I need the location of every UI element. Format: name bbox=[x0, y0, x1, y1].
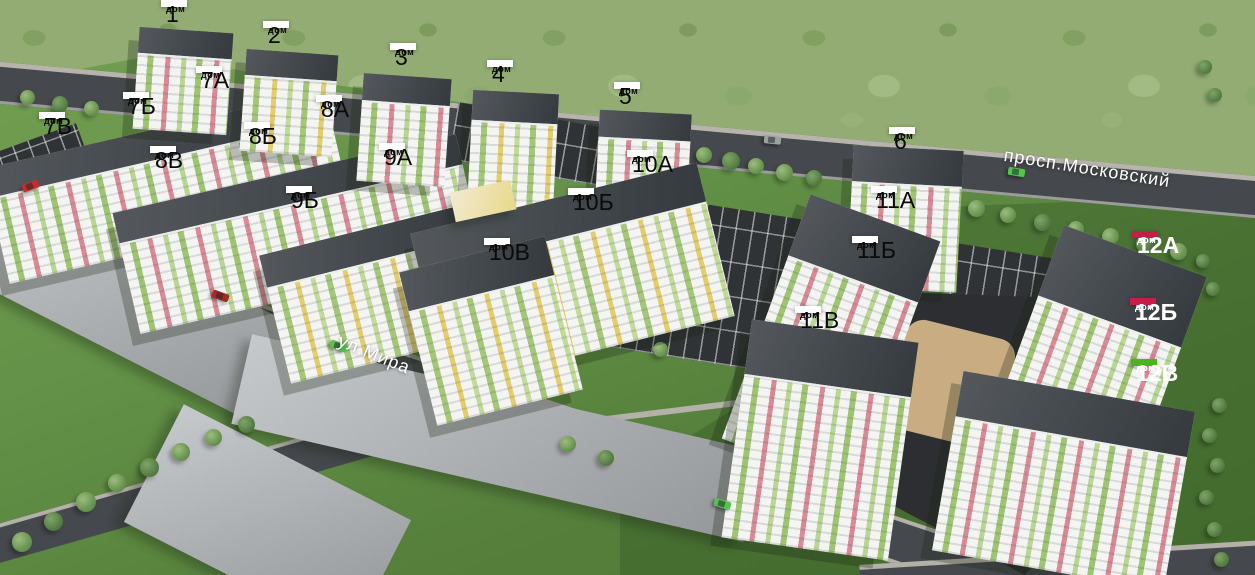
marker-sub-label: дом bbox=[128, 97, 147, 106]
tree bbox=[1214, 552, 1229, 567]
tree bbox=[172, 443, 190, 461]
marker-sub-label: дом bbox=[155, 151, 174, 160]
marker-sub-label: дом bbox=[489, 243, 508, 252]
tree bbox=[238, 416, 255, 433]
marker-sub-label: дом bbox=[632, 155, 651, 164]
tree bbox=[598, 450, 614, 466]
marker-sub-label: дом bbox=[249, 127, 268, 136]
tree bbox=[205, 429, 222, 446]
building-marker-11В[interactable]: 11Вдом bbox=[795, 306, 821, 313]
tree bbox=[1207, 522, 1222, 537]
building-marker-11А[interactable]: 11Адом bbox=[871, 186, 897, 193]
marker-sub-label: дом bbox=[44, 117, 63, 126]
tree bbox=[776, 164, 793, 181]
marker-sub-label: дом bbox=[201, 71, 220, 80]
tree bbox=[1210, 458, 1225, 473]
marker-sub-label: дом bbox=[268, 26, 287, 35]
building-marker-8Б[interactable]: 8Бдом bbox=[244, 122, 270, 129]
tree bbox=[748, 158, 764, 174]
building-marker-8В[interactable]: 8Вдом bbox=[150, 146, 176, 153]
tree bbox=[12, 532, 32, 552]
marker-sub-label: дом bbox=[857, 241, 876, 250]
tree bbox=[1000, 207, 1016, 223]
tree bbox=[52, 96, 68, 112]
building-marker-11Б[interactable]: 11Бдом bbox=[852, 236, 878, 243]
tree bbox=[1202, 428, 1217, 443]
building-marker-7Б[interactable]: 7Бдом bbox=[123, 92, 149, 99]
marker-sub-label: дом bbox=[876, 191, 895, 200]
building-marker-2[interactable]: 2дом bbox=[263, 21, 289, 28]
tree bbox=[1034, 214, 1051, 231]
marker-sub-label: дом bbox=[573, 193, 592, 202]
tree bbox=[968, 200, 985, 217]
tree bbox=[696, 147, 712, 163]
tree bbox=[1196, 254, 1210, 268]
building-marker-5[interactable]: 5дом bbox=[614, 82, 640, 89]
marker-sub-label: дом bbox=[384, 148, 403, 157]
building-marker-6[interactable]: 6дом bbox=[889, 127, 915, 134]
building-marker-9А[interactable]: 9Адом bbox=[379, 143, 405, 150]
marker-sub-label: дом bbox=[395, 48, 414, 57]
tree bbox=[20, 90, 35, 105]
marker-sub-label: дом bbox=[619, 87, 638, 96]
tree bbox=[806, 170, 822, 186]
building-marker-12В[interactable]: 12Вдом bbox=[1131, 359, 1157, 366]
tree bbox=[140, 458, 159, 477]
tree bbox=[84, 101, 99, 116]
building-marker-7А[interactable]: 7Адом bbox=[196, 66, 222, 73]
building-marker-10В[interactable]: 10Вдом bbox=[484, 238, 510, 245]
building-marker-12А[interactable]: 12Адом bbox=[1132, 231, 1158, 238]
building-block-11v bbox=[722, 319, 919, 560]
building-marker-4[interactable]: 4дом bbox=[487, 60, 513, 67]
marker-sub-label: дом bbox=[1137, 236, 1156, 245]
tree bbox=[560, 436, 576, 452]
marker-sub-label: дом bbox=[1136, 364, 1155, 373]
tree bbox=[1198, 60, 1212, 74]
marker-sub-label: дом bbox=[800, 311, 819, 320]
tree bbox=[1208, 88, 1222, 102]
tree bbox=[653, 342, 668, 357]
marker-sub-label: дом bbox=[291, 191, 310, 200]
building-marker-8А[interactable]: 8Адом bbox=[316, 95, 342, 102]
tree bbox=[722, 152, 740, 170]
building-marker-9Б[interactable]: 9Бдом bbox=[286, 186, 312, 193]
tree bbox=[108, 474, 126, 492]
marker-sub-label: дом bbox=[894, 132, 913, 141]
masterplan-map: 1дом2дом3дом4дом5дом6дом7Адом7Бдом7Вдом8… bbox=[0, 0, 1255, 575]
tree bbox=[1199, 490, 1214, 505]
building-marker-10А[interactable]: 10Адом bbox=[627, 150, 653, 157]
building-marker-3[interactable]: 3дом bbox=[390, 43, 416, 50]
marker-sub-label: дом bbox=[1135, 303, 1154, 312]
marker-sub-label: дом bbox=[321, 100, 340, 109]
building-marker-12Б[interactable]: 12Бдом bbox=[1130, 298, 1156, 305]
building-marker-7В[interactable]: 7Вдом bbox=[39, 112, 65, 119]
tree bbox=[44, 512, 63, 531]
marker-sub-label: дом bbox=[166, 5, 185, 14]
tree bbox=[1206, 282, 1220, 296]
marker-sub-label: дом bbox=[492, 65, 511, 74]
tree bbox=[1212, 398, 1227, 413]
building-marker-1[interactable]: 1дом bbox=[161, 0, 187, 7]
building-marker-10Б[interactable]: 10Бдом bbox=[568, 188, 594, 195]
car-gray bbox=[764, 135, 782, 145]
tree bbox=[76, 492, 96, 512]
